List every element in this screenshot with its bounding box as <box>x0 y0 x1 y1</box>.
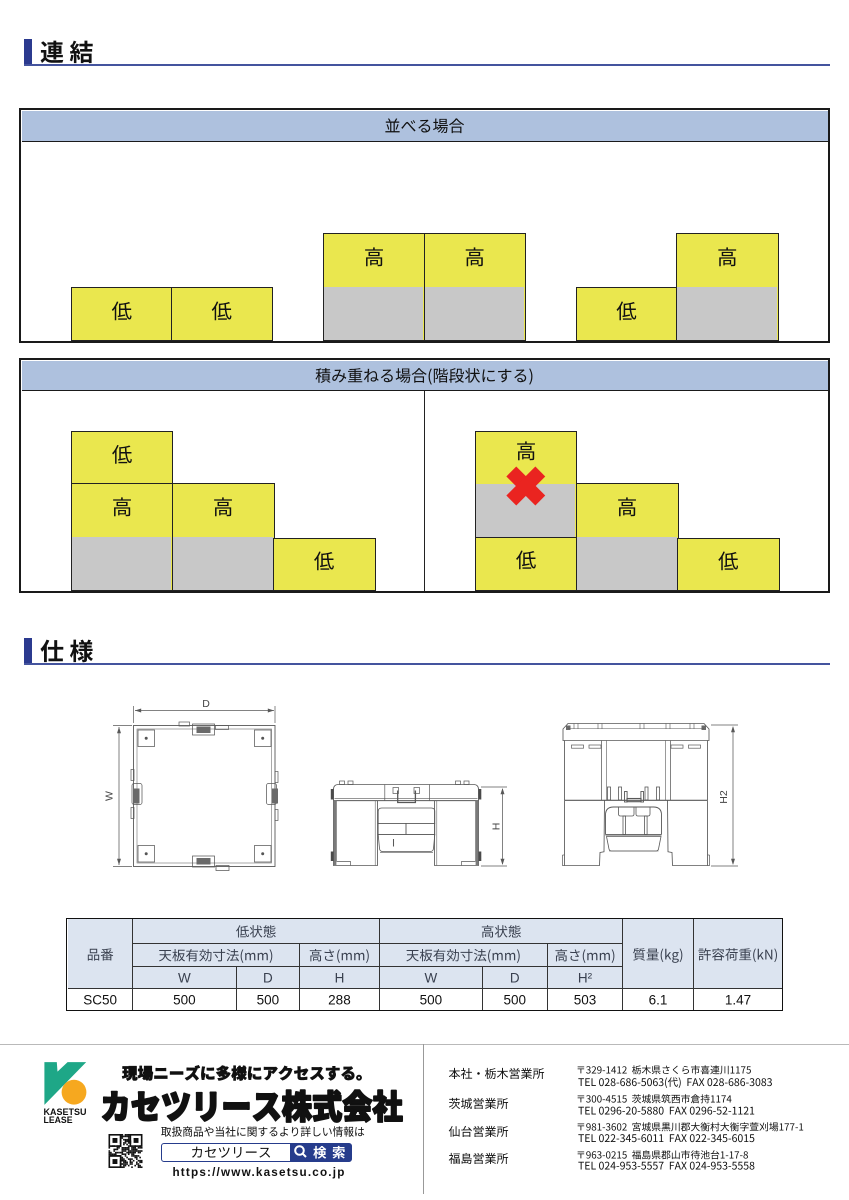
svg-text:500: 500 <box>503 992 526 1007</box>
svg-text:500: 500 <box>173 992 196 1007</box>
svg-text:W: W <box>178 971 191 986</box>
svg-text:D: D <box>202 698 210 710</box>
svg-text:500: 500 <box>420 992 443 1007</box>
svg-text:H: H <box>491 823 503 831</box>
svg-text:1.47: 1.47 <box>725 992 751 1007</box>
svg-text:D: D <box>510 971 520 986</box>
svg-text:6.1: 6.1 <box>649 992 668 1007</box>
svg-text:H²: H² <box>578 971 593 986</box>
svg-text:https://www.kasetsu.co.jp: https://www.kasetsu.co.jp <box>172 1166 345 1179</box>
svg-text:503: 503 <box>574 992 597 1007</box>
svg-text:W: W <box>104 791 116 801</box>
svg-text:SC50: SC50 <box>83 992 117 1007</box>
svg-text:W: W <box>425 971 438 986</box>
svg-text:LEASE: LEASE <box>44 1115 73 1125</box>
svg-text:288: 288 <box>328 992 351 1007</box>
svg-text:H: H <box>335 971 345 986</box>
svg-text:H2: H2 <box>718 790 730 804</box>
svg-text:D: D <box>263 971 273 986</box>
svg-text:500: 500 <box>257 992 280 1007</box>
